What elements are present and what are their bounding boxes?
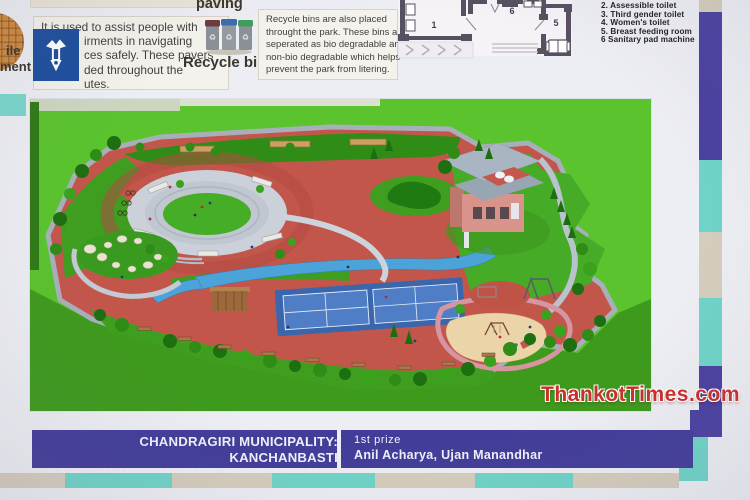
park-rendering	[30, 99, 651, 411]
paving-label: paving	[196, 0, 243, 12]
pen-nib-icon	[41, 37, 71, 73]
toilet-floor-plan: 1 6 5	[398, 0, 572, 62]
pen-tool-logo-icon	[33, 29, 79, 81]
room-number-6: 6	[509, 6, 514, 16]
floor-plan-ramp	[398, 42, 473, 58]
svg-text:♻: ♻	[242, 33, 249, 42]
recycle-desc-line: throught the park. These bins are	[266, 27, 397, 40]
right-border-stripe	[699, 0, 722, 437]
bottom-border-strip	[0, 473, 679, 488]
recycle-desc-line: Recycle bins are also placed	[266, 14, 397, 27]
poster-photo: It is used to assist people with irments…	[0, 0, 750, 500]
tactile-pavement-label: ile ment	[0, 43, 31, 75]
park-title-line1: CHANDRAGIRI MUNICIPALITY: KANCHANBASTI	[42, 434, 338, 465]
pergola	[210, 287, 250, 311]
left-edge-teal-block	[0, 94, 26, 116]
title-band: CHANDRAGIRI MUNICIPALITY: KANCHANBASTI A…	[32, 430, 693, 468]
legend-item: 6 Sanitary pad machine	[601, 36, 695, 45]
room-number-1: 1	[431, 20, 436, 30]
band-divider	[337, 430, 341, 468]
photo-watermark: ThankotTimes.com	[541, 383, 740, 407]
prize-names: Anil Acharya, Ujan Manandhar	[354, 448, 543, 462]
svg-text:♻: ♻	[209, 33, 216, 42]
room-number-5: 5	[553, 18, 558, 28]
recycle-desc-line: non-bio degradable which helps	[266, 52, 397, 65]
recycle-bins-icon: ♻ ♻ ♻	[204, 13, 254, 55]
recycle-desc-line: prevent the park from litering.	[266, 64, 397, 77]
recycle-bins-description: Recycle bins are also placed throught th…	[258, 9, 398, 80]
floor-plan-legend: 2. Assessible toilet 3. Third gender toi…	[601, 2, 695, 45]
prize-label: 1st prize	[354, 434, 543, 446]
recycle-desc-line: seperated as bio degradable and	[266, 39, 397, 52]
svg-text:♻: ♻	[225, 33, 232, 42]
prize-block: 1st prize Anil Acharya, Ujan Manandhar	[354, 434, 543, 462]
